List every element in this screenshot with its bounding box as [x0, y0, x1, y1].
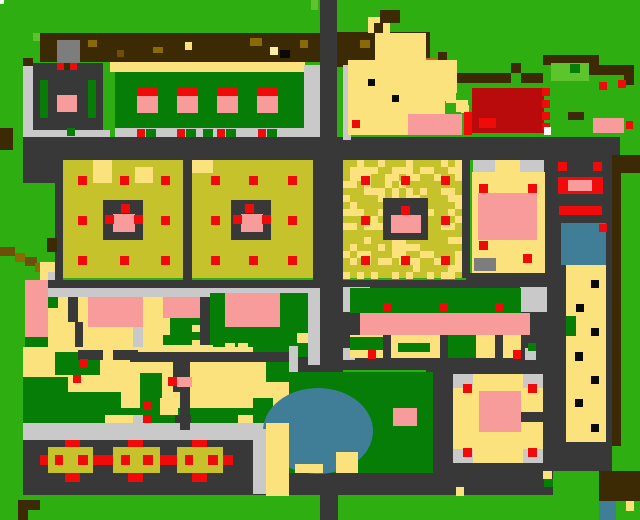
- beach: [336, 452, 358, 473]
- pink-court: [88, 297, 143, 327]
- window: [177, 96, 198, 113]
- game-viewport[interactable]: [0, 0, 640, 520]
- shrine-sign: [568, 180, 592, 191]
- red-dot: [479, 241, 488, 250]
- park-green: [266, 362, 289, 382]
- red-dot: [441, 216, 450, 225]
- roof-speckle: [455, 265, 462, 272]
- roof-speckle: [357, 167, 364, 174]
- tree-speck: [250, 38, 262, 46]
- garden-corner: [520, 287, 547, 312]
- bush: [226, 129, 236, 137]
- roof-speckle: [441, 160, 448, 167]
- red-dot: [542, 88, 550, 96]
- red-dot: [523, 254, 532, 263]
- road-west-of-block-a: [55, 160, 63, 288]
- sand-lot: [375, 33, 426, 62]
- roof-speckle: [392, 272, 399, 279]
- sand-lot: [446, 93, 456, 103]
- roof-speckle: [392, 188, 399, 195]
- roof-wear: [192, 160, 213, 173]
- red-dot: [368, 350, 376, 359]
- black-dot: [591, 424, 599, 432]
- dark-brown-block: [0, 128, 13, 150]
- roof-speckle: [371, 223, 378, 230]
- wood-structure: [599, 471, 640, 501]
- roof-speckle: [455, 237, 462, 244]
- fence-post: [589, 55, 599, 75]
- sign-plate: [177, 377, 192, 387]
- pixel-town-map: [0, 0, 640, 520]
- red-dot: [463, 384, 472, 393]
- red-dot: [233, 215, 242, 224]
- roof-speckle: [350, 223, 357, 230]
- boardwalk: [266, 423, 289, 496]
- gray-pixel: [48, 272, 55, 280]
- red-dot: [558, 162, 567, 171]
- roof-speckle: [371, 216, 378, 223]
- block-d-corner: [520, 160, 544, 172]
- red-dot: [361, 256, 370, 265]
- roof-speckle: [399, 244, 406, 251]
- red-dot: [618, 80, 626, 88]
- roof-speckle: [371, 188, 378, 195]
- sand-lot: [426, 73, 436, 115]
- roof-speckle: [350, 258, 357, 265]
- roof-speckle: [350, 244, 357, 251]
- black-dot: [591, 328, 599, 336]
- fence-rail: [521, 73, 543, 83]
- roof-speckle: [441, 188, 448, 195]
- sidewalk: [253, 429, 266, 494]
- bush-patch: [448, 335, 476, 358]
- bench: [18, 500, 40, 510]
- fence-garden-bush: [570, 64, 580, 73]
- tree-trunk: [15, 253, 25, 262]
- roof-speckle: [434, 258, 441, 265]
- road-south-stub: [320, 495, 338, 520]
- red-dot: [599, 224, 607, 232]
- roof-speckle: [378, 258, 385, 265]
- house-pillar: [88, 80, 96, 118]
- roof-speckle: [350, 174, 357, 181]
- boardwalk: [566, 265, 606, 442]
- red-dot: [143, 455, 153, 465]
- roof-speckle: [441, 272, 448, 279]
- roof-speckle: [378, 244, 385, 251]
- red-dot: [161, 216, 170, 225]
- roof-speckle: [455, 202, 462, 209]
- roof-speckle: [448, 195, 455, 202]
- block-c-entrance: [391, 215, 421, 233]
- block-a-entrance: [113, 214, 135, 232]
- roof-speckle: [448, 237, 455, 244]
- bush: [566, 316, 576, 336]
- red-dot: [288, 216, 297, 225]
- bench: [18, 510, 28, 520]
- tree-speck: [185, 42, 192, 50]
- roof-speckle: [350, 181, 357, 188]
- red-dot: [211, 216, 220, 225]
- fence-bump: [511, 63, 521, 73]
- bush-patch: [350, 337, 383, 350]
- bush: [163, 335, 173, 345]
- red-dot: [361, 216, 370, 225]
- water-inlet: [599, 501, 616, 520]
- window-awning: [257, 88, 278, 96]
- dark-brown-block: [612, 155, 640, 173]
- house-door: [57, 95, 77, 112]
- tree-band-west: [40, 33, 320, 62]
- tree-speck: [23, 58, 33, 66]
- roof-speckle: [357, 209, 364, 216]
- log: [568, 112, 584, 120]
- sidewalk: [23, 63, 33, 137]
- red-dot: [134, 215, 143, 224]
- red-dot: [495, 303, 503, 311]
- roof-speckle: [413, 244, 420, 251]
- red-dot: [78, 216, 87, 225]
- garden-post: [440, 335, 448, 360]
- black-dot: [575, 352, 583, 361]
- roof-wear: [135, 167, 153, 183]
- plaza-post: [200, 297, 210, 345]
- bush: [67, 128, 75, 136]
- red-dot: [143, 416, 151, 423]
- sand-patch: [105, 415, 133, 423]
- red-dot: [249, 176, 258, 185]
- garden-post: [383, 335, 391, 360]
- red-dot: [78, 176, 87, 185]
- bush: [146, 129, 156, 137]
- roof-speckle: [448, 167, 455, 174]
- tree-speck: [280, 50, 290, 58]
- red-dot: [78, 455, 88, 465]
- red-dot: [361, 176, 370, 185]
- red-dot: [120, 256, 129, 265]
- window: [137, 96, 158, 113]
- roof-speckle: [343, 195, 350, 202]
- roof-speckle: [350, 209, 357, 216]
- grass-light-stripe: [311, 0, 318, 10]
- house-pillar: [40, 80, 48, 118]
- red-dot: [137, 129, 145, 137]
- roof-speckle: [399, 167, 406, 174]
- roof-speckle: [392, 167, 399, 174]
- red-dot: [441, 256, 450, 265]
- window-awning: [177, 88, 198, 96]
- table-bump: [192, 473, 207, 482]
- red-dot: [120, 176, 129, 185]
- bush: [544, 479, 553, 487]
- plaza-post: [68, 297, 78, 322]
- bush: [186, 129, 196, 137]
- roof-speckle: [385, 181, 392, 188]
- beach: [295, 464, 323, 473]
- red-dot: [383, 303, 391, 311]
- roof-speckle: [413, 258, 420, 265]
- picnic-mat: [393, 408, 417, 426]
- bush: [48, 297, 58, 308]
- red-dot: [55, 455, 63, 465]
- red-dot: [528, 448, 537, 457]
- sand-lot: [436, 83, 446, 101]
- shop-roof-edge: [110, 62, 305, 72]
- roof-speckle: [406, 188, 413, 195]
- pink-court: [25, 280, 48, 337]
- red-dot: [401, 176, 410, 185]
- bush-patch: [398, 343, 430, 352]
- roof-speckle: [364, 188, 371, 195]
- red-dot: [352, 120, 360, 128]
- fence-line-east: [612, 172, 621, 446]
- tree-speck: [88, 40, 97, 47]
- roof-speckle: [455, 216, 462, 223]
- roof-speckle: [378, 188, 385, 195]
- red-dot: [161, 256, 170, 265]
- roof-speckle: [420, 188, 427, 195]
- red-bar: [559, 206, 602, 215]
- black-dot: [576, 304, 584, 312]
- tree-trunk: [0, 247, 15, 256]
- pink-court: [225, 293, 280, 327]
- roof-speckle: [343, 223, 350, 230]
- table-bump: [128, 473, 143, 482]
- roof-speckle: [413, 174, 420, 181]
- cursor-dot: [0, 0, 4, 4]
- red-dot: [211, 256, 220, 265]
- block-e-court: [479, 391, 521, 432]
- red-dot: [245, 204, 254, 213]
- roof-speckle: [427, 251, 434, 258]
- roof-speckle: [448, 272, 455, 279]
- red-dot: [211, 176, 220, 185]
- roof-speckle: [420, 167, 427, 174]
- window-awning: [217, 88, 238, 96]
- sand-patch: [456, 487, 464, 496]
- red-dot: [528, 184, 537, 193]
- red-dot: [57, 63, 64, 70]
- chimney: [57, 40, 80, 63]
- black-dot: [392, 95, 399, 102]
- block-d-court: [478, 193, 537, 240]
- red-dot: [626, 121, 633, 129]
- red-dot: [542, 112, 550, 120]
- red-accent: [464, 112, 472, 135]
- red-dot: [463, 448, 472, 457]
- block-d-corner: [473, 160, 495, 172]
- block-d-top: [495, 160, 520, 172]
- black-dot: [591, 376, 599, 384]
- table-bump: [65, 473, 80, 482]
- red-dot: [105, 215, 114, 224]
- roof-speckle: [357, 160, 364, 167]
- red-dot: [288, 256, 297, 265]
- black-dot: [575, 399, 583, 407]
- tree-speck: [360, 40, 370, 48]
- road-a-b: [183, 160, 192, 280]
- roof-wear: [93, 160, 112, 183]
- roof-speckle: [343, 251, 350, 258]
- tree-speck: [117, 50, 124, 57]
- roof-speckle: [406, 272, 413, 279]
- sand-patch: [297, 333, 308, 343]
- road-main-horizontal: [23, 137, 620, 160]
- pink-terrace: [593, 118, 624, 133]
- red-dot: [121, 455, 130, 465]
- roof-speckle: [455, 258, 462, 265]
- black-dot: [591, 280, 599, 288]
- roof-speckle: [392, 251, 399, 258]
- roof-speckle: [406, 244, 413, 251]
- tree-speck: [270, 47, 278, 55]
- block-d-steps: [474, 258, 496, 271]
- roof-speckle: [406, 167, 413, 174]
- roof-speckle: [364, 167, 371, 174]
- table-bump: [192, 440, 207, 447]
- red-dot: [185, 455, 193, 465]
- roof-speckle: [350, 167, 357, 174]
- roof-speckle: [434, 174, 441, 181]
- block-b-entrance: [241, 214, 263, 232]
- red-dot: [441, 176, 450, 185]
- roof-speckle: [371, 272, 378, 279]
- white-pixel: [544, 127, 551, 135]
- red-dot: [440, 303, 448, 311]
- red-dot: [258, 129, 266, 137]
- roof-speckle: [350, 202, 357, 209]
- roof-speckle: [357, 272, 364, 279]
- black-dot: [368, 79, 375, 86]
- sand-lot: [445, 60, 457, 93]
- roof-speckle: [448, 265, 455, 272]
- pink-terrace: [408, 114, 462, 135]
- sand-patch: [543, 471, 552, 479]
- red-dot: [78, 256, 87, 265]
- roof-speckle: [413, 265, 420, 272]
- roof-speckle: [378, 160, 385, 167]
- roof-speckle: [343, 209, 350, 216]
- sidewalk: [308, 288, 320, 365]
- bush: [528, 343, 536, 351]
- tree-speck: [300, 40, 308, 48]
- gray-pixel: [133, 415, 143, 423]
- roof-speckle: [420, 251, 427, 258]
- roof-speckle: [392, 174, 399, 181]
- red-accent: [479, 118, 496, 128]
- roof-speckle: [427, 167, 434, 174]
- red-dot: [513, 350, 521, 359]
- roof-speckle: [364, 237, 371, 244]
- roof-speckle: [455, 174, 462, 181]
- grass-block: [23, 183, 55, 245]
- sidewalk: [304, 65, 320, 137]
- garden-post: [495, 335, 503, 360]
- roof-speckle: [343, 272, 350, 279]
- roof-speckle: [427, 209, 434, 216]
- garden-pink-bar: [360, 313, 530, 335]
- roof-speckle: [427, 272, 434, 279]
- red-dot: [177, 129, 185, 137]
- signpost-pole: [180, 392, 190, 430]
- roof-speckle: [343, 181, 350, 188]
- roof-speckle: [448, 188, 455, 195]
- roof-speckle: [406, 160, 413, 167]
- red-dot: [599, 82, 607, 90]
- roof-speckle: [448, 209, 455, 216]
- red-dot: [143, 401, 151, 410]
- red-dot: [249, 256, 258, 265]
- tree-speck: [153, 47, 163, 53]
- road-top-vertical: [320, 0, 337, 137]
- red-dot: [401, 256, 410, 265]
- red-dot: [479, 184, 488, 193]
- pink-court: [163, 297, 205, 318]
- roof-speckle: [455, 167, 462, 174]
- red-dot: [73, 375, 81, 383]
- bush: [203, 129, 213, 137]
- bush: [267, 129, 277, 137]
- roof-speckle: [371, 167, 378, 174]
- red-dot: [262, 215, 271, 224]
- table-bump: [128, 440, 143, 447]
- red-dot: [401, 206, 410, 215]
- red-dot: [288, 176, 297, 185]
- roof-speckle: [455, 160, 462, 167]
- red-dot: [80, 359, 88, 368]
- path-horizontal: [130, 352, 290, 362]
- window: [257, 96, 278, 113]
- window: [217, 96, 238, 113]
- sidewalk: [23, 423, 266, 440]
- red-dot: [208, 455, 218, 465]
- road-c-d: [462, 160, 470, 278]
- red-dot: [593, 162, 602, 171]
- red-dot: [528, 384, 537, 393]
- roof-speckle: [392, 244, 399, 251]
- roof-speckle: [455, 195, 462, 202]
- tree-top: [380, 10, 400, 23]
- table-bump: [65, 440, 80, 447]
- roof-speckle: [385, 174, 392, 181]
- block-e-notch: [521, 412, 543, 422]
- red-dot: [161, 176, 170, 185]
- red-dot: [217, 129, 225, 137]
- red-dot: [70, 63, 77, 70]
- red-dot: [121, 204, 130, 213]
- sand-patch: [626, 501, 634, 511]
- red-dot: [168, 377, 177, 386]
- sand-patch: [160, 398, 178, 415]
- roof-speckle: [385, 258, 392, 265]
- tree-top: [374, 23, 383, 33]
- window-awning: [137, 88, 158, 96]
- roof-speckle: [455, 251, 462, 258]
- red-dot: [542, 100, 550, 108]
- tree-trunk: [47, 238, 57, 252]
